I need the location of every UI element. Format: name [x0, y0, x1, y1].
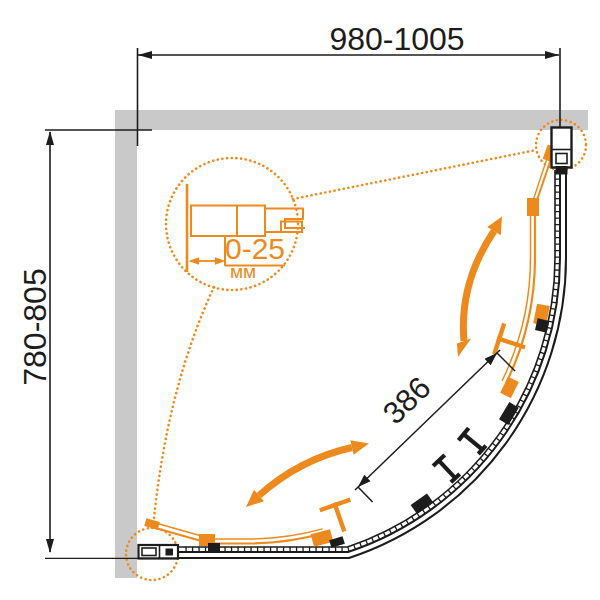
dimension-door: 386 [355, 350, 515, 502]
dimension-depth: 780-805 [17, 130, 178, 558]
wall-left [115, 110, 137, 578]
leader-line-bottom [153, 287, 214, 528]
wall-profile-bottom-left [139, 545, 179, 559]
door-handle-left-stem [335, 505, 344, 530]
dimension-door-label: 386 [376, 370, 438, 431]
dimension-width-label: 980-1005 [329, 21, 464, 57]
door-left-inner-edge [154, 523, 323, 540]
detail-content: 0-25 мм [187, 184, 305, 282]
detail-leaders [126, 120, 586, 580]
motion-arrow-right-shaft [463, 231, 494, 341]
track-glass-hatching [185, 172, 558, 550]
dimension-door-ext-lower [358, 487, 373, 502]
profile-bottom-clamp [166, 549, 174, 556]
door-right-inner-edge [502, 204, 531, 381]
dimension-depth-label: 780-805 [17, 268, 53, 385]
profile-top-body [552, 128, 572, 168]
wall-top [115, 110, 588, 130]
door-hanger-brackets [144, 145, 555, 530]
motion-arrow-right-head-down [457, 338, 471, 357]
shower-enclosure-diagram: 980-1005 780-805 386 [0, 0, 600, 600]
wall-profile-top-right [552, 128, 572, 175]
dimension-width-arrow-right [545, 51, 559, 59]
stopper-black-5 [208, 543, 220, 551]
motion-arrow-left-head-up [350, 440, 369, 455]
profile-top-clamp [556, 166, 568, 175]
detail-dim-arrow-right [215, 257, 226, 265]
dimension-depth-arrow-bottom [46, 539, 54, 553]
detail-dim-arrow-left [189, 257, 200, 265]
sliding-doors [152, 156, 552, 544]
door-handle-right-stem [499, 339, 523, 347]
detail-profile-step [265, 209, 305, 229]
track-mid-line [178, 168, 560, 552]
handles-black [433, 428, 486, 482]
detail-profile-notch [265, 222, 302, 233]
roller-orange-top [527, 198, 539, 216]
diagram-canvas: 980-1005 780-805 386 [0, 0, 600, 600]
door-left-end-bracket [144, 518, 160, 530]
stopper-black-2 [499, 402, 519, 425]
dimension-depth-arrow-top [46, 131, 54, 145]
handle-black-2-stem [464, 434, 483, 449]
dimension-width-arrow-left [138, 51, 152, 59]
handle-black-1-stem [439, 461, 455, 479]
detail-adjustment-unit: мм [230, 261, 256, 282]
leader-line-top [293, 150, 536, 199]
motion-arrow-left-shaft [259, 448, 352, 496]
